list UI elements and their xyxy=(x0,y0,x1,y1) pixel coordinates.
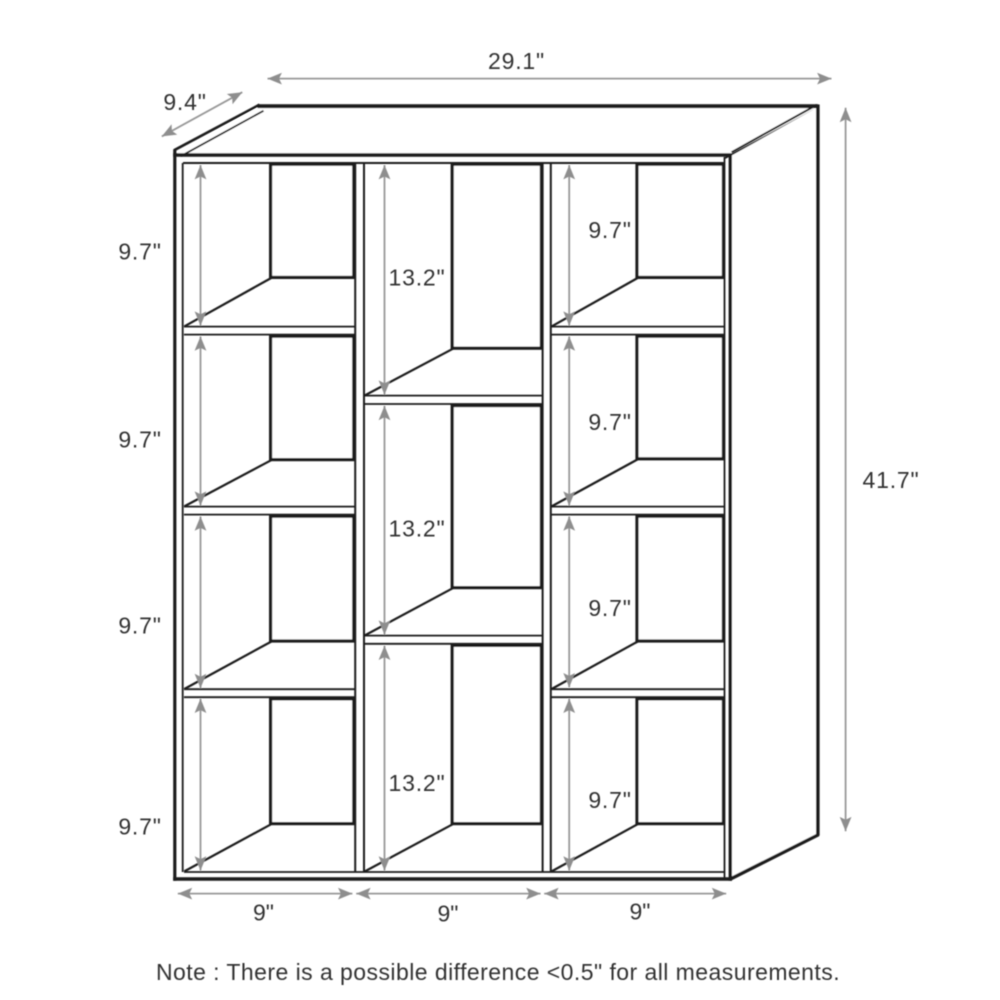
svg-text:41.7": 41.7" xyxy=(863,467,920,493)
svg-text:Note : There is a possible dif: Note : There is a possible difference <0… xyxy=(156,959,840,985)
svg-text:13.2": 13.2" xyxy=(389,516,446,542)
svg-text:9.4": 9.4" xyxy=(163,89,206,115)
svg-text:9": 9" xyxy=(438,901,459,927)
svg-text:9.7": 9.7" xyxy=(588,787,631,813)
svg-text:9.7": 9.7" xyxy=(118,613,161,639)
svg-text:29.1": 29.1" xyxy=(488,48,545,74)
svg-text:9.7": 9.7" xyxy=(588,217,631,243)
svg-text:13.2": 13.2" xyxy=(389,770,446,796)
svg-text:9": 9" xyxy=(253,900,274,926)
svg-text:13.2": 13.2" xyxy=(389,265,446,291)
svg-text:9.7": 9.7" xyxy=(118,239,161,265)
svg-text:9.7": 9.7" xyxy=(118,427,161,453)
svg-text:9": 9" xyxy=(630,899,651,925)
svg-text:9.7": 9.7" xyxy=(588,595,631,621)
svg-text:9.7": 9.7" xyxy=(118,814,161,840)
svg-text:9.7": 9.7" xyxy=(588,409,631,435)
